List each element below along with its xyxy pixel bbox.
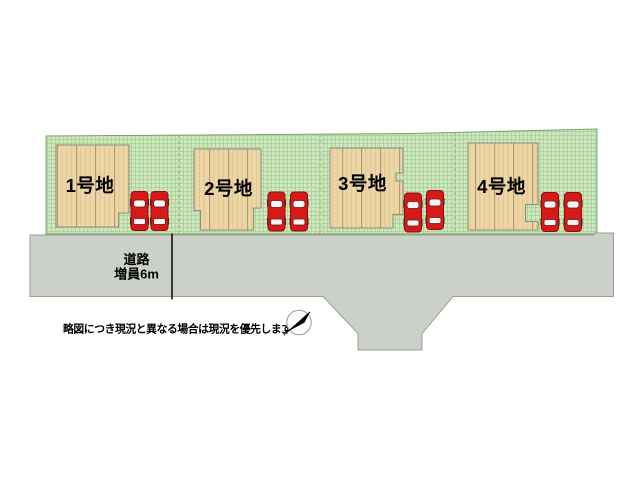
car-icon xyxy=(541,193,560,232)
lot-label-1: 1号地 xyxy=(66,175,115,196)
car-icon xyxy=(290,192,309,231)
car-icon xyxy=(267,192,286,231)
road-label-line2: 増員6m xyxy=(114,267,159,282)
lot-label-2: 2号地 xyxy=(204,178,253,199)
car-icon xyxy=(426,191,445,230)
car-icon xyxy=(130,192,149,231)
disclaimer-note: 略図につき現況と異なる場合は現況を優先します xyxy=(63,322,292,336)
car-icon xyxy=(150,192,169,231)
road-label-line1: 道路 xyxy=(123,252,150,267)
site-plan-canvas: 1号地 2号地 3号地 4号地 道路 増員6m 略図につき現況と異なる場合は現況… xyxy=(0,0,640,480)
car-icon xyxy=(404,193,423,232)
lot-label-3: 3号地 xyxy=(338,173,387,194)
car-icon xyxy=(564,193,583,232)
lot-label-4: 4号地 xyxy=(477,176,526,197)
